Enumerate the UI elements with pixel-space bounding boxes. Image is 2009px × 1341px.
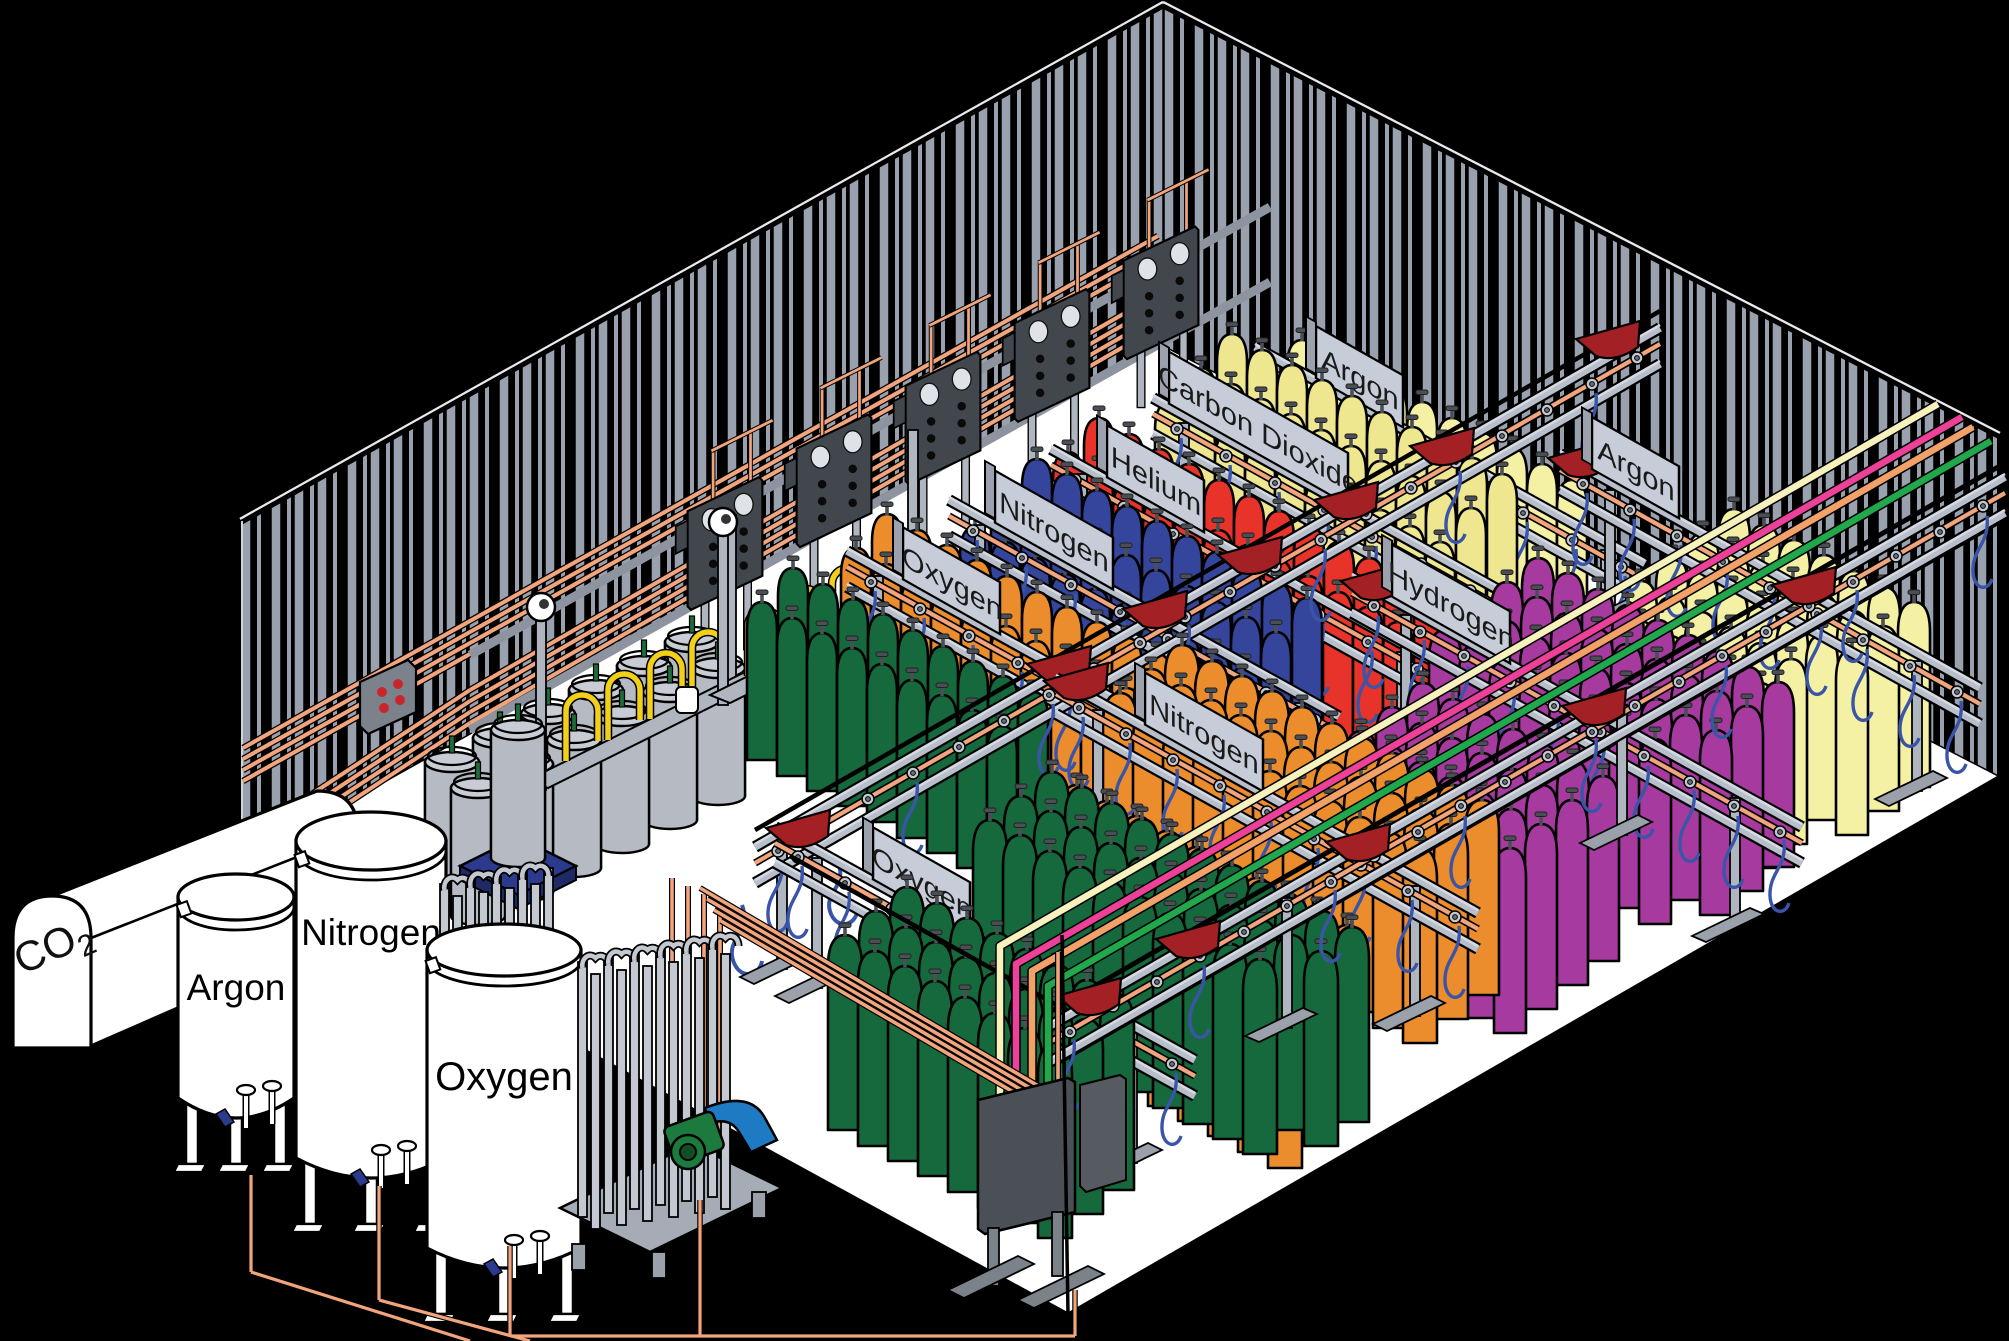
svg-text:Nitrogen: Nitrogen [301,912,441,953]
svg-text:Argon: Argon [187,967,286,1008]
svg-text:Oxygen: Oxygen [435,1055,573,1099]
